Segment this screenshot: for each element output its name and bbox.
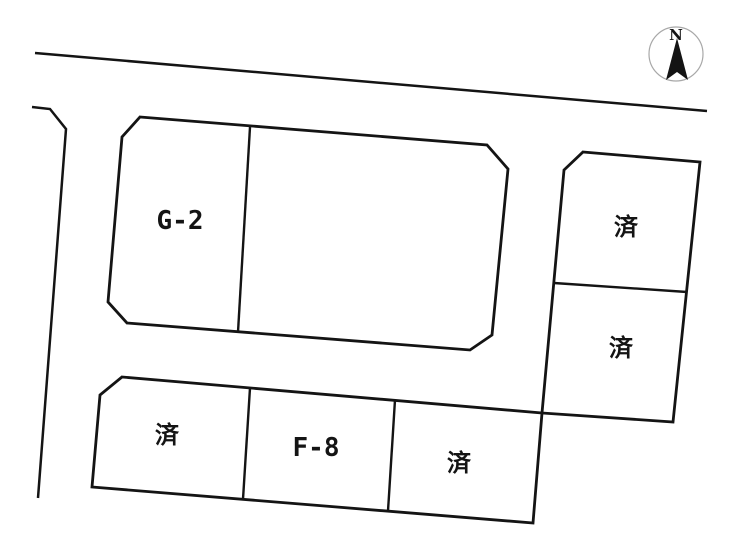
north-compass-icon: N — [649, 26, 703, 81]
lot-map-page: G-2 済 済 済 F-8 済 N — [0, 0, 740, 550]
compass-north-label: N — [669, 26, 683, 44]
lot-map-canvas: G-2 済 済 済 F-8 済 N — [0, 0, 740, 550]
plot-label-g2: G-2 — [157, 206, 204, 236]
plot-divider-right-column — [554, 283, 687, 292]
right-column-block: 済 済 — [542, 152, 700, 422]
plot-label-sold-bottom-right: 済 — [447, 449, 472, 477]
road-edge-top — [35, 53, 707, 111]
plot-label-f8: F-8 — [293, 433, 340, 463]
road-edge-left — [32, 107, 66, 498]
bottom-row-block: 済 F-8 済 — [92, 377, 542, 523]
plot-label-sold-bottom-left: 済 — [155, 421, 180, 449]
plot-label-sold-right-bottom: 済 — [609, 334, 634, 362]
plot-divider-bottom-right — [388, 400, 395, 511]
plot-label-sold-right-top: 済 — [614, 213, 639, 241]
plot-divider-g2 — [238, 127, 250, 332]
compass-needle-icon — [666, 38, 688, 80]
upper-block: G-2 — [108, 117, 508, 350]
plot-divider-bottom-left — [243, 388, 250, 499]
